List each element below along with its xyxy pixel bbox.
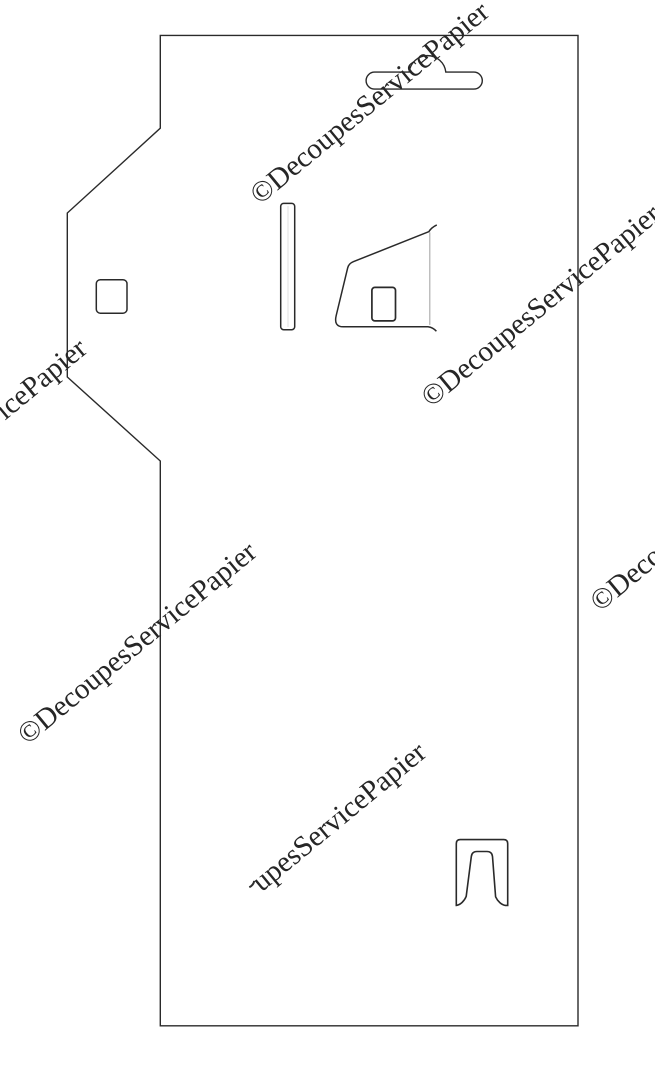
svg-text:©DecoupesServicePapier: ©DecoupesServicePapier [415,198,655,413]
svg-text:©DecoupesServicePapier: ©DecoupesServicePapier [11,536,263,751]
svg-text:©DecoupesServicePapier: ©DecoupesServicePapier [584,403,655,618]
svg-text:©DecoupesServicePapier: ©DecoupesServicePapier [244,0,496,211]
svg-text:upesServicePapier: upesServicePapier [246,736,433,898]
svg-text:©DecoupesServicePapier: ©DecoupesServicePapier [0,332,93,547]
